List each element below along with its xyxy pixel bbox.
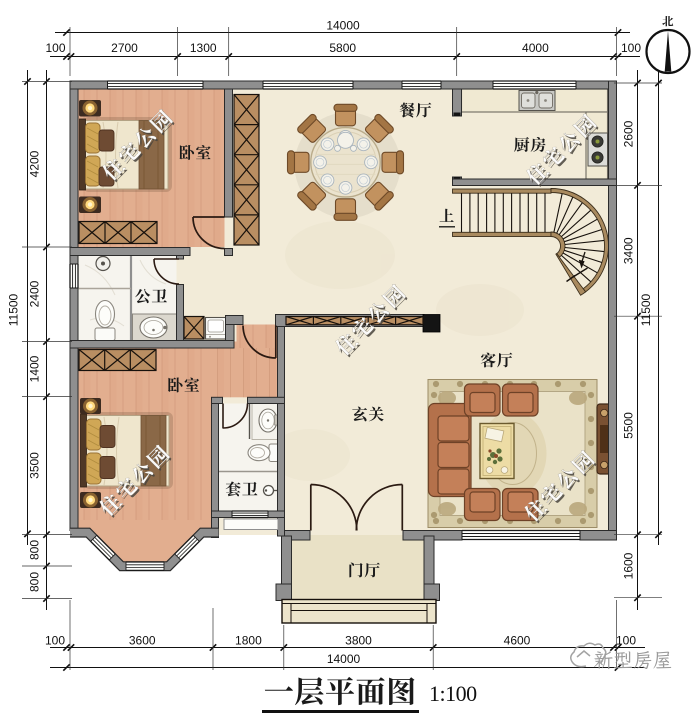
svg-text:3800: 3800 [345, 634, 372, 648]
svg-text:4000: 4000 [522, 41, 549, 55]
svg-text:1:100: 1:100 [429, 681, 477, 706]
svg-text:100: 100 [621, 41, 641, 55]
svg-text:800: 800 [28, 540, 42, 560]
svg-text:2400: 2400 [28, 280, 42, 307]
svg-text:1400: 1400 [28, 355, 42, 382]
svg-text:14000: 14000 [327, 652, 361, 666]
svg-text:1800: 1800 [235, 634, 262, 648]
svg-text:3500: 3500 [28, 452, 42, 479]
svg-text:4600: 4600 [504, 634, 531, 648]
svg-text:800: 800 [28, 572, 42, 592]
svg-text:5800: 5800 [329, 41, 356, 55]
svg-text:3600: 3600 [129, 634, 156, 648]
svg-text:100: 100 [45, 41, 65, 55]
svg-text:100: 100 [616, 634, 636, 648]
svg-text:14000: 14000 [326, 19, 360, 33]
svg-text:2700: 2700 [111, 41, 138, 55]
svg-text:11500: 11500 [7, 293, 21, 326]
svg-text:1300: 1300 [190, 41, 217, 55]
svg-text:5500: 5500 [622, 412, 636, 439]
svg-text:4200: 4200 [28, 150, 42, 177]
svg-text:2600: 2600 [622, 120, 636, 147]
svg-text:1600: 1600 [622, 552, 636, 579]
svg-text:11500: 11500 [639, 293, 653, 326]
svg-text:100: 100 [45, 634, 65, 648]
svg-text:3400: 3400 [622, 237, 636, 264]
